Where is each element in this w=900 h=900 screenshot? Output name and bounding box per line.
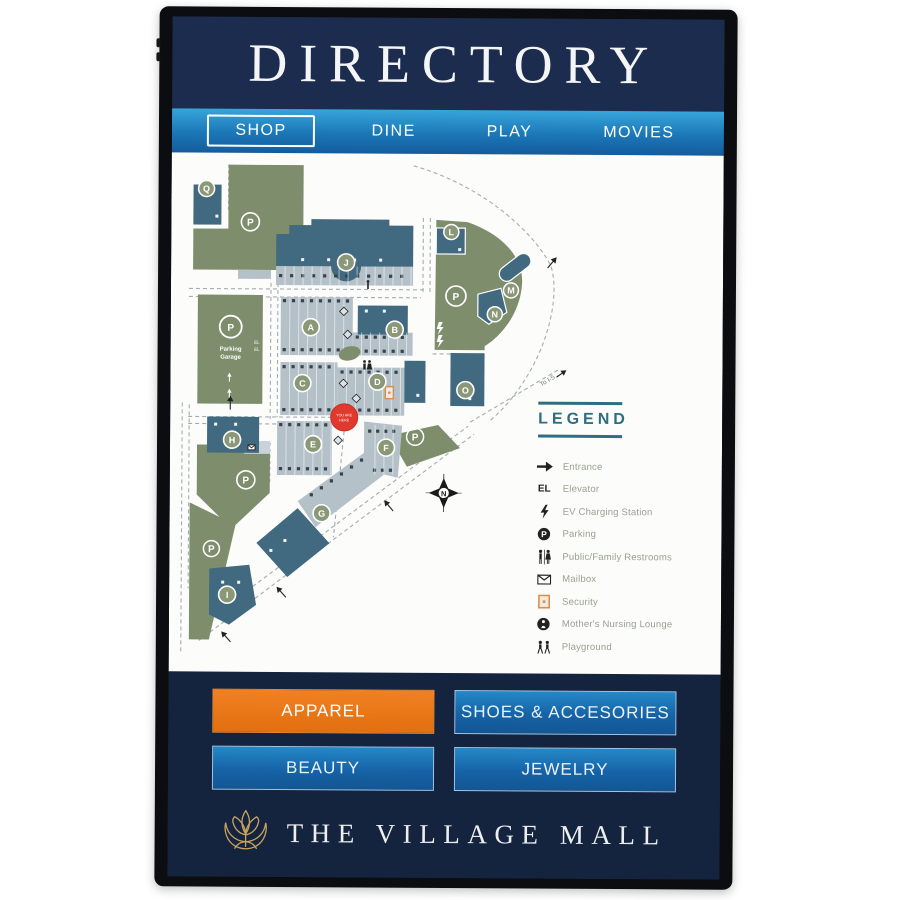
legend-item-playground: Playground [535, 640, 713, 655]
legend-rule-top [538, 402, 622, 406]
svg-text:N: N [441, 489, 446, 498]
legend-rule-bottom [538, 435, 622, 439]
tab-dine[interactable]: DINE [357, 116, 429, 146]
parking-icon: P [535, 527, 552, 541]
tab-bar: SHOP DINE PLAY MOVIES [172, 108, 724, 155]
svg-text:P: P [227, 323, 234, 334]
building-m: M [503, 283, 518, 298]
svg-text:M: M [507, 286, 515, 296]
svg-text:P: P [208, 544, 215, 555]
building-g: G [313, 505, 330, 522]
elevator-icon: EL [536, 482, 553, 496]
bezel-button [156, 52, 160, 61]
building-h: H [223, 431, 240, 448]
nursing-lounge-icon [535, 617, 552, 631]
legend: LEGEND Entrance EL Elevator [535, 402, 715, 655]
svg-text:Garage: Garage [220, 355, 241, 361]
bezel-button [156, 38, 160, 47]
entrance-arrow-icon [536, 460, 553, 474]
svg-text:G: G [318, 509, 325, 519]
legend-item-restrooms: Public/Family Restrooms [535, 550, 713, 565]
svg-text:C: C [299, 379, 306, 389]
legend-item-nursing: Mother's Nursing Lounge [535, 617, 713, 632]
mall-map[interactable]: To I-5 N P P P P P P [169, 152, 724, 674]
building-d: D [369, 373, 386, 390]
svg-text:N: N [492, 309, 499, 319]
playground-icon [535, 640, 552, 654]
svg-text:F: F [383, 443, 389, 453]
restrooms-icon [535, 550, 552, 564]
svg-text:P: P [242, 476, 249, 487]
category-beauty-button[interactable]: BEAUTY [212, 746, 434, 791]
svg-text:A: A [307, 323, 314, 333]
svg-text:H: H [229, 435, 236, 445]
you-are-here-marker: YOU ARE HERE [331, 404, 358, 431]
building-a: A [302, 319, 319, 336]
category-shoes-accessories-button[interactable]: SHOES & ACCESORIES [454, 690, 676, 735]
page-title: DIRECTORY [236, 36, 660, 93]
svg-text:I: I [226, 590, 229, 600]
lotus-logo-icon [221, 809, 271, 858]
category-jewelry-button[interactable]: JEWELRY [454, 747, 676, 792]
svg-text:J: J [344, 258, 349, 268]
tab-movies[interactable]: MOVIES [589, 118, 688, 149]
building-j: J [338, 254, 355, 271]
legend-item-parking: P Parking [535, 527, 713, 542]
building-q: Q [199, 180, 215, 196]
svg-text:EL: EL [254, 340, 260, 345]
to-i5-label: To I-5 [539, 374, 557, 389]
building-b: B [386, 321, 403, 338]
building-e: E [304, 436, 321, 453]
svg-text:P: P [541, 529, 547, 539]
legend-item-mailbox: Mailbox [535, 572, 713, 587]
svg-text:HERE: HERE [339, 418, 350, 422]
tab-shop[interactable]: SHOP [207, 115, 315, 148]
svg-text:L: L [449, 227, 455, 237]
legend-item-security: Security [535, 595, 713, 610]
svg-text:E: E [310, 440, 316, 450]
svg-text:Parking: Parking [220, 347, 242, 353]
building-n: N [487, 307, 502, 322]
svg-text:YOU ARE: YOU ARE [336, 413, 353, 417]
svg-text:P: P [453, 292, 460, 303]
svg-text:EL: EL [254, 347, 260, 352]
footer: THE VILLAGE MALL [167, 789, 720, 879]
legend-item-ev: EV Charging Station [536, 505, 714, 520]
svg-text:P: P [412, 432, 419, 443]
svg-text:Q: Q [203, 184, 210, 194]
legend-item-entrance: Entrance [536, 460, 714, 475]
legend-item-elevator: EL Elevator [536, 482, 714, 497]
svg-text:P: P [247, 218, 254, 229]
ev-charging-icon [536, 505, 553, 519]
security-icon [535, 595, 552, 609]
compass-icon: N [426, 474, 462, 512]
kiosk-screen: DIRECTORY SHOP DINE PLAY MOVIES [167, 16, 724, 879]
svg-text:D: D [374, 377, 381, 387]
category-panel: APPAREL SHOES & ACCESORIES BEAUTY JEWELR… [167, 671, 720, 879]
mailbox-icon [535, 572, 552, 586]
brand-name: THE VILLAGE MALL [287, 818, 667, 851]
legend-title: LEGEND [538, 411, 714, 430]
building-f: F [377, 439, 394, 456]
svg-text:O: O [462, 385, 469, 395]
kiosk-bezel: DIRECTORY SHOP DINE PLAY MOVIES [154, 6, 737, 890]
tab-play[interactable]: PLAY [473, 117, 547, 147]
svg-text:B: B [391, 325, 398, 335]
building-i: I [219, 586, 236, 603]
building-o: O [457, 382, 474, 399]
category-apparel-button[interactable]: APPAREL [212, 689, 434, 734]
photo-background: DIRECTORY SHOP DINE PLAY MOVIES [0, 0, 900, 900]
building-c: C [294, 375, 311, 392]
building-l: L [444, 224, 459, 239]
header: DIRECTORY [172, 16, 725, 111]
